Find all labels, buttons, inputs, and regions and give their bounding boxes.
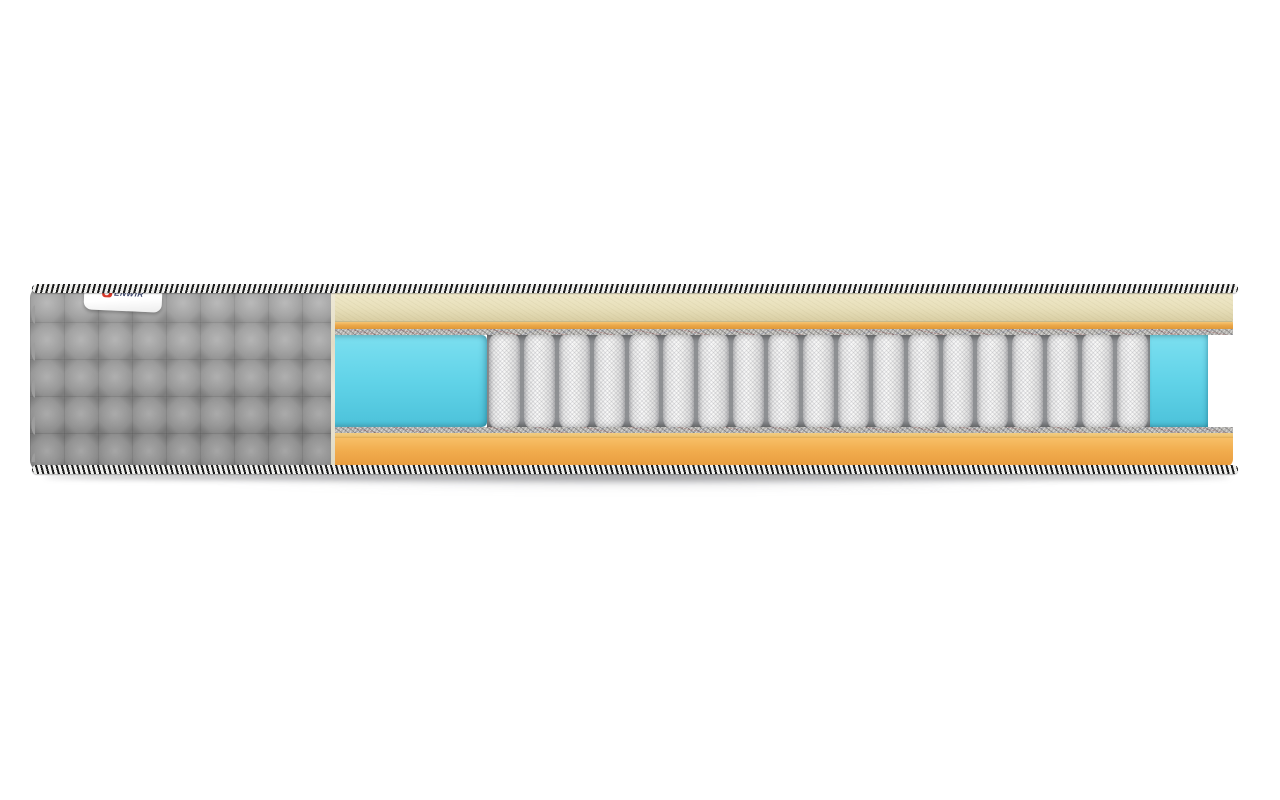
bottom-rope-piping [32, 465, 1238, 474]
spring-coil [594, 335, 625, 427]
spring-coil [559, 335, 590, 427]
side-foam-left [328, 335, 487, 427]
spring-coil [489, 335, 520, 427]
spring-core-row [328, 335, 1233, 427]
top-foam-band [328, 322, 1233, 329]
pocket-springs [487, 335, 1150, 427]
spring-coil [629, 335, 660, 427]
spring-coil [733, 335, 764, 427]
base-foam-layer [328, 438, 1233, 467]
spring-coil [1117, 335, 1148, 427]
spring-coil [1047, 335, 1078, 427]
quilt-edge-scallops [25, 296, 35, 462]
spring-coil [524, 335, 555, 427]
spring-coil [803, 335, 834, 427]
spring-coil [838, 335, 869, 427]
spring-coil [768, 335, 799, 427]
spring-coil [1082, 335, 1113, 427]
top-rope-piping [32, 284, 1238, 293]
top-comfort-layer [328, 292, 1233, 322]
spring-coil [698, 335, 729, 427]
spring-coil [1012, 335, 1043, 427]
scene-background: ENWIR [0, 0, 1280, 800]
mattress-cutaway: ENWIR [30, 284, 1240, 474]
side-foam-right [1150, 335, 1208, 427]
spring-coil [663, 335, 694, 427]
spring-coil [908, 335, 939, 427]
quilted-cover [30, 286, 333, 472]
spring-coil [943, 335, 974, 427]
spring-coil [977, 335, 1008, 427]
cover-cut-edge [331, 291, 335, 467]
spring-coil [873, 335, 904, 427]
